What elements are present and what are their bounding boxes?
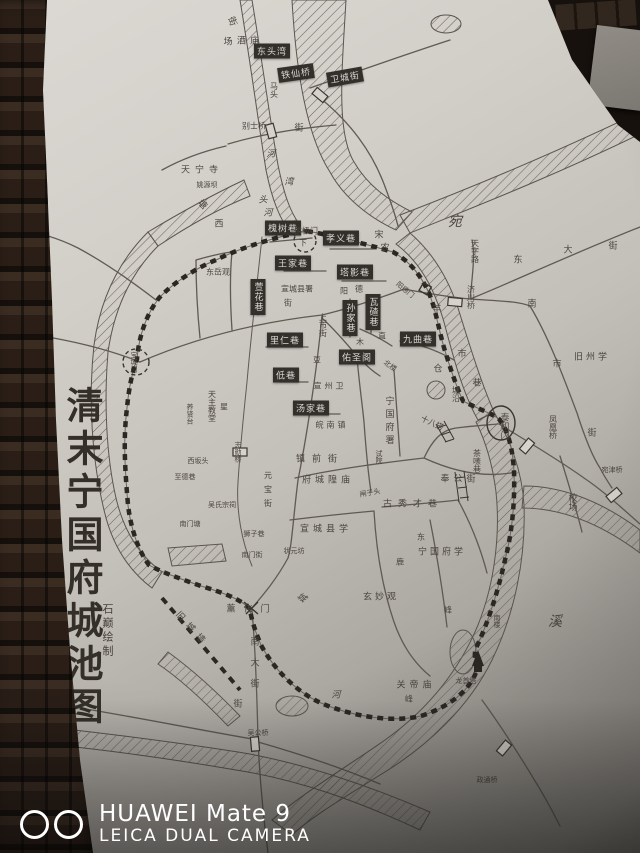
- map-label: 志勋桥: [233, 442, 243, 463]
- map-label: 河: [263, 206, 272, 219]
- map-label: 西坂头: [188, 456, 209, 466]
- map-boxed-label: 孝义巷: [323, 231, 359, 246]
- map-label: 马头: [269, 82, 280, 98]
- map-label: 泰和门: [498, 413, 511, 440]
- map-label: 南门街: [242, 550, 263, 560]
- map-label: 峰: [444, 605, 452, 616]
- museum-wall-photo: 东头湾铁仙桥卫城街槐树巷孝义巷王家巷塔影巷萱花巷里仁巷低巷孙家巷瓦碴巷佑圣阁九曲…: [0, 0, 640, 853]
- map-boxed-label: 孙家巷: [343, 300, 358, 336]
- watermark-line2: LEICA DUAL CAMERA: [99, 827, 311, 847]
- map-boxed-label: 里仁巷: [267, 333, 303, 348]
- map-label: 宣城县署: [281, 284, 313, 295]
- map-label: 养贤台: [185, 404, 195, 425]
- map-label: 星: [220, 402, 228, 413]
- map-label: 至德巷: [175, 472, 196, 482]
- map-label: 街: [225, 15, 240, 28]
- map-label: 街: [284, 298, 292, 309]
- camera-lenses-icon: [20, 810, 83, 839]
- map-label: 巷: [472, 376, 481, 389]
- map-label: 旧城墙: [173, 608, 213, 650]
- map-label: 试院: [374, 450, 384, 464]
- map-label: 街: [587, 426, 596, 439]
- lens-circle-icon: [20, 810, 49, 839]
- map-label: 校场: [566, 493, 579, 511]
- map-label: 宣州卫: [314, 381, 347, 392]
- map-boxed-label: 卫城街: [326, 66, 364, 87]
- map-label: 宋: [374, 228, 383, 241]
- map-label: 吴氏宗祠: [208, 500, 236, 510]
- map-label: 宁国府学: [418, 545, 466, 558]
- map-label: 市: [457, 347, 466, 360]
- map-label: 溪: [548, 611, 562, 631]
- map-boxed-label: 汤家巷: [293, 401, 329, 416]
- map-label: 豆: [313, 355, 321, 366]
- map-label: 木: [356, 337, 364, 348]
- map-boxed-label: 萱花巷: [251, 279, 266, 315]
- map-label: 西: [214, 217, 223, 230]
- map-label: 街: [608, 239, 617, 252]
- map-label: 街: [233, 697, 242, 710]
- map-label: 拱极门: [294, 226, 318, 237]
- map-label: 姚源坝: [197, 180, 218, 190]
- map-label: 龙首塔: [456, 676, 477, 686]
- map-label: 直: [378, 331, 386, 342]
- map-label: 宣城县学: [300, 522, 352, 535]
- map-label: 东: [417, 532, 425, 543]
- map-label: 大: [563, 243, 572, 256]
- map-boxed-label: 九曲巷: [400, 332, 436, 347]
- map-label: 南大街: [248, 637, 261, 700]
- map-boxed-label: 王家巷: [275, 256, 311, 271]
- map-label: 旧州学: [574, 350, 610, 363]
- map-label: 东岳观: [206, 267, 230, 278]
- map-label: 状元坊: [284, 546, 305, 556]
- map-label: 十八搭: [419, 413, 445, 433]
- map-boxed-label: 铁仙桥: [277, 63, 315, 83]
- camera-watermark: HUAWEI Mate 9 LEICA DUAL CAMERA: [20, 801, 311, 847]
- map-label: 河: [266, 147, 275, 160]
- map-label: 天主教堂: [207, 390, 218, 422]
- map-label: 河: [331, 688, 340, 701]
- map-label: 北楼: [381, 358, 398, 374]
- map-label: 南门塘: [180, 519, 201, 529]
- map-label: 天宁寺: [181, 163, 223, 176]
- map-label: 阳: [340, 286, 348, 297]
- map-boxed-label: 塔影巷: [337, 265, 373, 280]
- map-label: 塘: [195, 196, 211, 212]
- map-label: 阳德门: [394, 279, 417, 300]
- map-label: 宁国府署: [383, 396, 396, 448]
- map-label: 吴公桥: [248, 728, 269, 738]
- map-label: 仓: [433, 362, 442, 375]
- map-boxed-label: 瓦碴巷: [366, 294, 381, 330]
- map-label: 奉公街: [440, 472, 479, 485]
- map-label: 元宝街: [263, 471, 274, 513]
- map-label: 皖南镇: [316, 420, 349, 431]
- map-boxed-label: 佑圣阁: [339, 350, 375, 365]
- map-label: 政通桥: [477, 775, 498, 785]
- map-label: 玄妙观: [363, 590, 399, 603]
- map-label: 羊: [432, 302, 441, 315]
- map-label: 府城隍庙: [302, 473, 354, 486]
- map-label: 茶嗉巷: [472, 449, 483, 473]
- map-label: 峰: [405, 694, 413, 705]
- map-label: 街: [294, 121, 303, 134]
- map-label: 头: [258, 193, 267, 206]
- map-label: 关帝庙: [396, 678, 435, 691]
- map-label: 鹿: [396, 557, 404, 568]
- map-label: 东: [513, 253, 522, 266]
- lens-circle-icon: [54, 810, 83, 839]
- map-label: 薰化门: [226, 602, 277, 615]
- map-label: 上市街: [318, 313, 329, 337]
- map-label: 天字路: [470, 239, 481, 263]
- map-label: 古秀才巷: [383, 497, 443, 510]
- map-label: 湾: [284, 175, 293, 188]
- map-label: 市: [552, 357, 561, 370]
- map-label: 德: [355, 284, 363, 295]
- map-label: 济川桥: [466, 285, 477, 309]
- map-credit: 石巅绘制: [99, 603, 115, 659]
- map-label: 城: [295, 589, 310, 605]
- map-label: 南: [527, 297, 536, 310]
- map-label: 闸子头: [359, 486, 381, 499]
- map-label: 酒庙: [237, 34, 263, 47]
- map-label: 宛津桥: [602, 465, 623, 475]
- map-label: 塘沿: [451, 386, 462, 402]
- map-label: 狮子巷: [244, 529, 265, 539]
- map-label: 下: [299, 238, 307, 249]
- map-label: 凤凰桥: [548, 415, 559, 439]
- map-label: 宝城门: [129, 352, 139, 373]
- map-label: 别士桥: [242, 121, 266, 132]
- map-boxed-label: 低巷: [273, 368, 299, 383]
- map-label: 南楼: [492, 614, 502, 628]
- watermark-line1: HUAWEI Mate 9: [99, 801, 311, 827]
- map-label: 镇前街: [296, 452, 344, 465]
- map-label: 农: [380, 241, 389, 254]
- map-label: 场: [223, 35, 232, 48]
- map-label: 宛: [448, 211, 462, 231]
